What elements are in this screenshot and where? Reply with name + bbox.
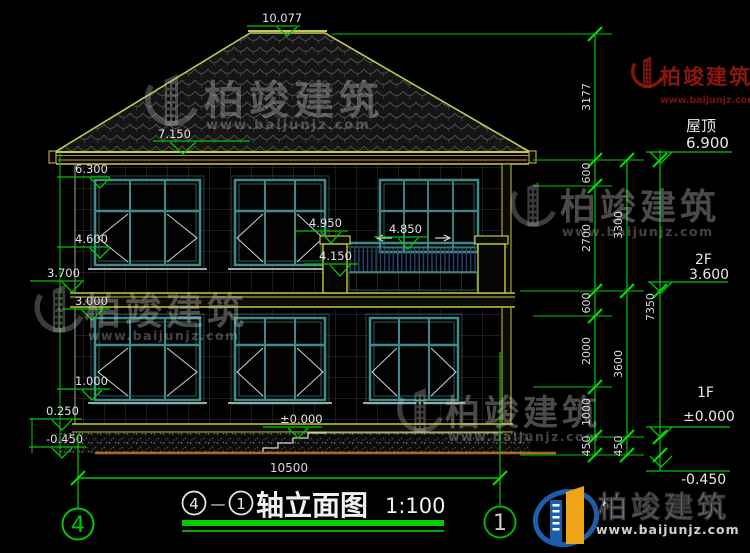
window-2f-left [88,176,207,269]
watermark-brand: 柏竣建筑 [560,187,720,228]
title-axis-right: 1 [236,495,246,513]
level-value: ±0.000 [280,412,323,426]
watermark-logo-icon [633,57,662,88]
balcony-post-cap-left [320,236,350,244]
level-value: 6.300 [75,162,108,176]
balcony-window [377,180,478,252]
dim-value: 3600 [612,350,625,378]
axis-number: 4 [71,513,85,538]
floor-label: 1F [697,385,714,401]
watermark-brand: 柏竣建筑 [660,65,750,89]
watermark-right: 柏竣建筑 www.baijunjz.com [513,182,720,239]
watermark-url: www.baijunjz.com [660,95,750,106]
level-value: 4.150 [319,249,352,263]
level-mark-band2: 3.700 [30,266,84,292]
watermark-url: www.baijunjz.com [206,118,371,133]
watermark-brand: 柏竣建筑 [84,290,248,333]
floor-value: 6.900 [686,134,729,152]
watermark-url: www.baijunjz.com [88,328,240,343]
axis-bubble-right: 1 [485,507,516,538]
floor-level-base: -0.450 [646,456,730,488]
dim-value: 2000 [580,337,593,365]
drawing-canvas: 10.077 7.150 6.300 4.600 3.700 3.000 [0,0,750,553]
level-value: 4.850 [389,222,422,236]
floor-label: 屋顶 [686,117,716,135]
watermark-brand: 柏竣建筑 [445,393,601,434]
brand-logo-icon [528,484,603,553]
dim-value: 3177 [580,83,593,111]
title-axis-left: 4 [189,495,199,513]
watermark-url: www.baijunjz.com [562,224,714,239]
brand-url: www.baijunjz.com [596,522,740,537]
window-1f-right [363,314,465,404]
level-value: 10.077 [262,11,302,25]
floor-level-roof: 屋顶 6.900 [646,117,732,163]
brand-name: 柏竣建筑 [598,490,730,524]
eave-fascia [49,151,536,164]
balcony-post-right [478,244,505,293]
balcony-railing [349,248,477,272]
level-value: 1.000 [75,374,108,388]
watermark-left: 柏竣建筑 www.baijunjz.com [37,285,248,343]
gutter-end-right [529,151,536,163]
balcony-post-cap-right [475,236,508,244]
total-width-value: 10500 [270,461,308,475]
watermark-url: www.baijunjz.com [448,429,600,444]
cad-elevation-drawing: 10.077 7.150 6.300 4.600 3.700 3.000 [0,0,750,553]
level-value: 0.250 [46,404,79,418]
logo-bottom-right: 柏竣建筑 www.baijunjz.com [528,484,739,553]
dim-value: 600 [580,163,593,184]
level-value: 4.600 [75,232,108,246]
title-text: 轴立面图 [256,489,368,522]
dim-value: 600 [580,293,593,314]
watermark-logo-icon [513,182,554,226]
axis-bubble-left: 4 [63,509,94,540]
dim-value: 7350 [644,293,657,321]
dim-value: 450 [612,436,625,457]
floor-value: ±0.000 [683,409,735,425]
title-scale: 1:100 [385,494,446,518]
watermark-top-right-red: 柏竣建筑 www.baijunjz.com [633,57,750,106]
axis-number: 1 [493,511,507,536]
floor-value: 3.600 [689,267,729,283]
title-block: 4 — 1 轴立面图 1:100 [182,489,446,531]
gutter-end-left [49,151,56,163]
floor-level-1f: 1F ±0.000 [646,385,735,438]
title-underline-thick [182,520,444,526]
floor-label: 2F [695,252,712,268]
level-value: 4.950 [309,216,342,230]
level-value: 7.150 [158,127,191,141]
floor-value: -0.450 [681,472,726,488]
title-separator: — [211,495,226,513]
balcony-panel [349,273,477,290]
level-value: 3.700 [47,266,80,280]
